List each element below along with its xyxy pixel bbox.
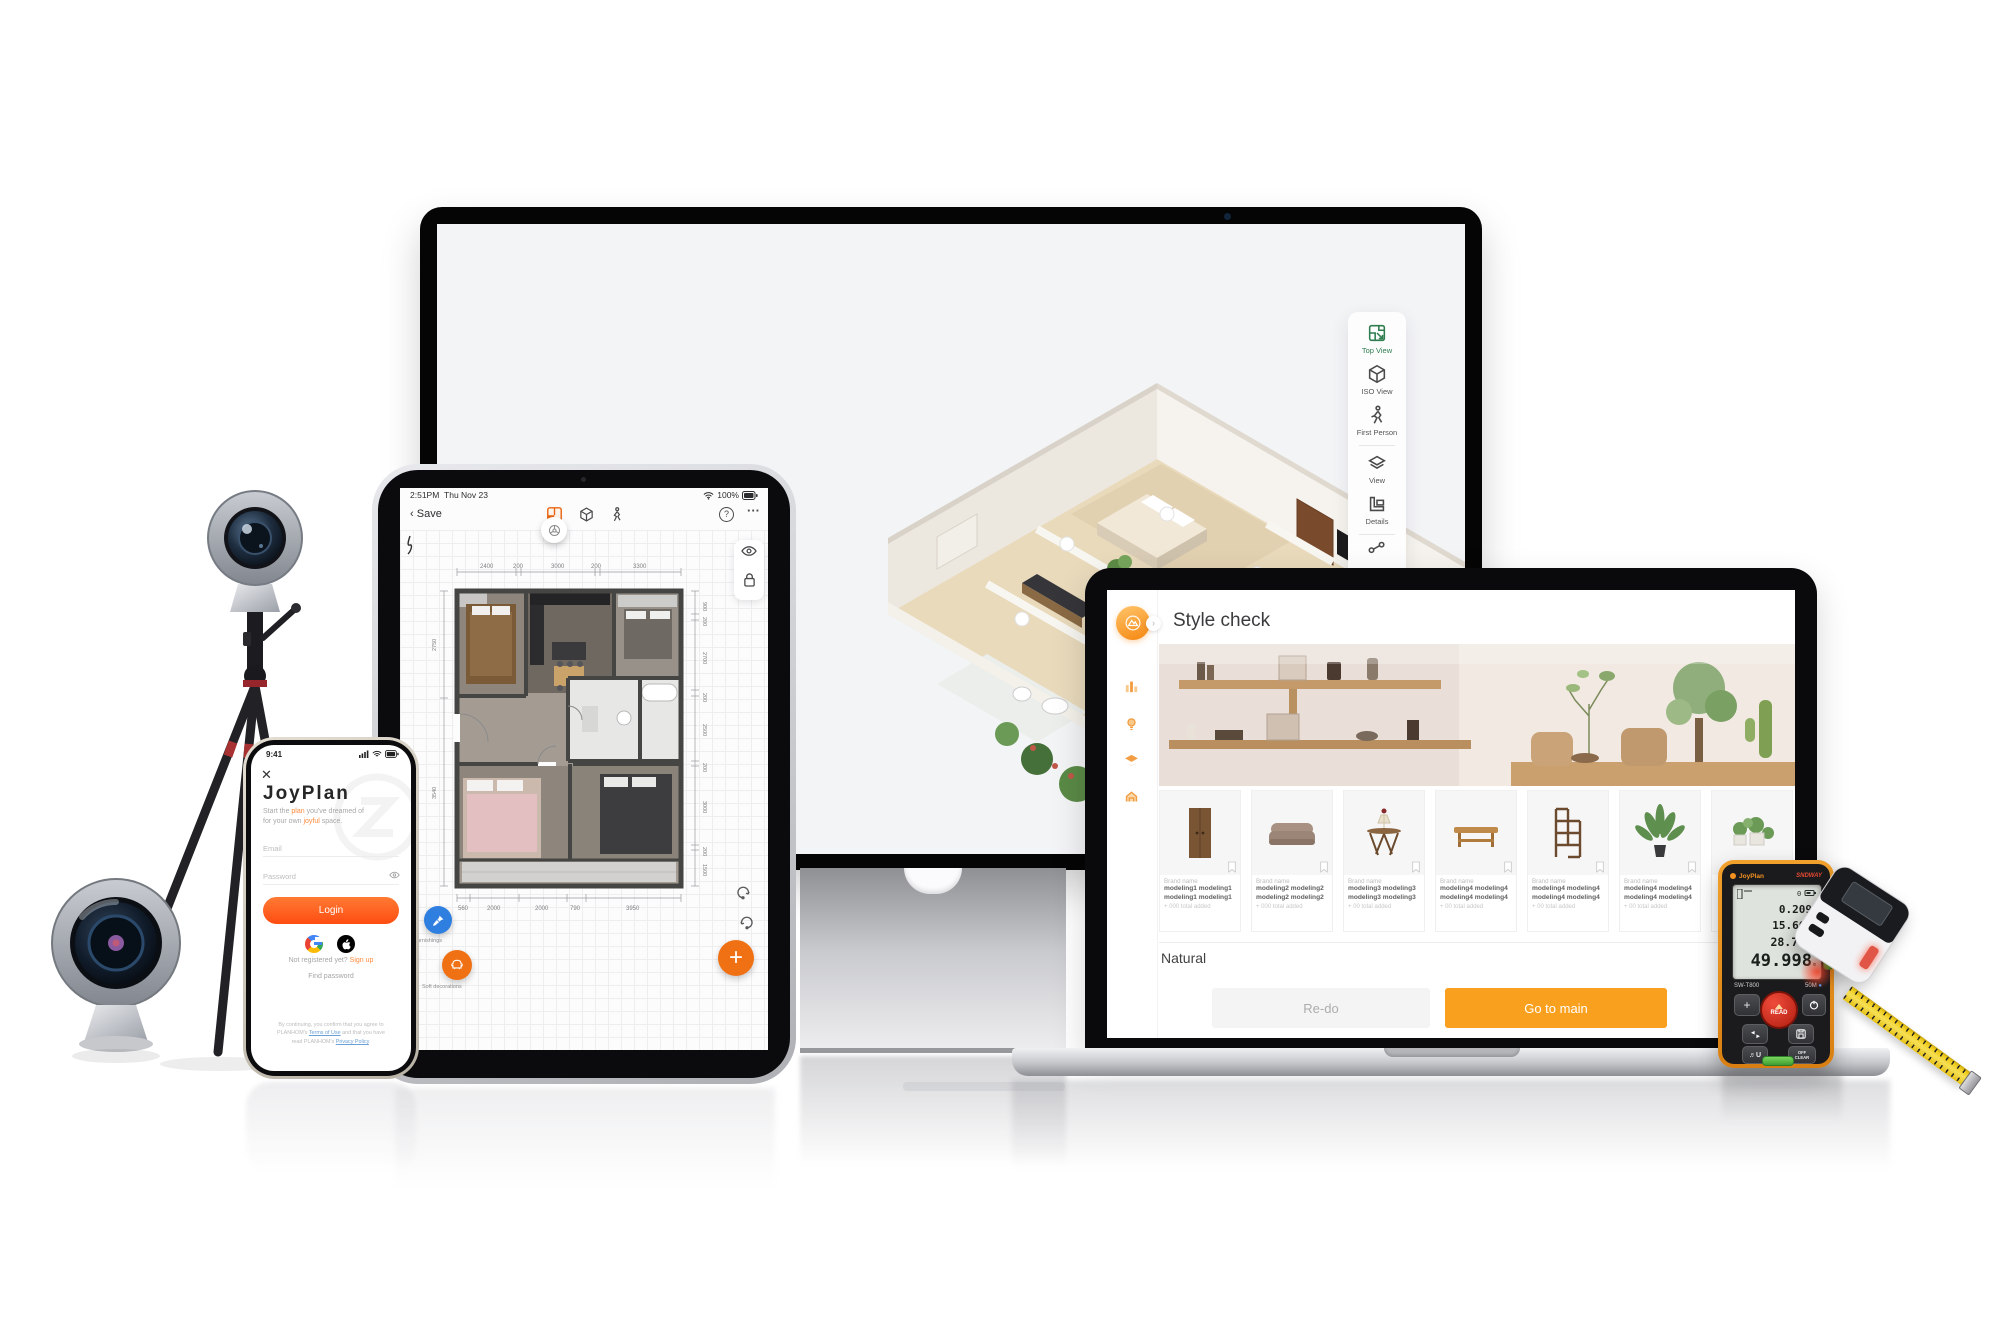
plus-button[interactable]: + <box>1734 994 1760 1016</box>
wifi-icon <box>372 750 382 758</box>
view-toolbar-label: Details <box>1348 517 1406 526</box>
svg-text:560: 560 <box>458 906 469 912</box>
privacy-link[interactable]: Privacy Policy <box>336 1039 369 1045</box>
tape-hook <box>1958 1070 1981 1095</box>
svg-text:3000: 3000 <box>551 564 565 570</box>
bookmark-icon[interactable] <box>1687 861 1697 873</box>
svg-text:2000: 2000 <box>487 906 501 912</box>
svg-text:1500: 1500 <box>701 864 707 876</box>
phone-reflection <box>246 1082 416 1172</box>
phone-screen: 9:41 ✕ JoyPlan Start the plan you've dre… <box>251 745 411 1071</box>
laptop-deck-scoop <box>1384 1048 1520 1057</box>
terms-link[interactable]: Terms of Use <box>309 1030 341 1036</box>
floorplan-2d-drawing: 2400 200 3000 200 3300 560 2000 2000 790… <box>418 546 764 976</box>
svg-text:2750: 2750 <box>432 639 438 651</box>
legal-text: By continuing, you confirm that you agre… <box>257 1021 405 1046</box>
brand-dot-icon <box>1730 873 1736 879</box>
svg-text:2400: 2400 <box>480 564 494 570</box>
first-person-icon <box>1366 404 1388 426</box>
svg-text:900: 900 <box>701 602 707 611</box>
bookmark-icon[interactable] <box>1227 861 1237 873</box>
tablet-toolbar: ‹ Save ? ··· <box>400 503 768 529</box>
sign-up-link[interactable]: Sign up <box>350 957 374 964</box>
furniture-card[interactable]: Brand namemodeling3 modeling3modeling3 m… <box>1343 790 1425 932</box>
rotate-view-button[interactable] <box>541 517 567 543</box>
walkthrough-mode-icon[interactable] <box>608 506 625 523</box>
battery-icon <box>385 750 399 758</box>
view-toolbar-label: Top View <box>1348 346 1406 355</box>
password-underline <box>263 884 399 885</box>
toolbar-divider <box>1359 445 1395 446</box>
soft-decorations-label: Soft decorations <box>422 984 462 990</box>
view-toolbar-details[interactable]: Details <box>1348 493 1406 526</box>
sidebar-layers-icon[interactable] <box>1123 752 1140 769</box>
furniture-card[interactable]: Brand namemodeling4 modeling4modeling4 m… <box>1619 790 1701 932</box>
view-toolbar-label: View <box>1348 476 1406 485</box>
undo-button[interactable] <box>734 882 752 900</box>
svg-text:3540: 3540 <box>432 787 438 799</box>
measurer-header: JoyPlan SNDWAY <box>1730 871 1822 881</box>
redo-button[interactable]: Re-do <box>1212 988 1430 1028</box>
view-toolbar-label: First Person <box>1348 428 1406 437</box>
furniture-card[interactable]: Brand namemodeling4 modeling4modeling4 m… <box>1435 790 1517 932</box>
layers-icon <box>1366 452 1388 474</box>
show-password-eye-icon[interactable] <box>389 871 400 879</box>
view-toolbar-share-partial[interactable] <box>1348 541 1406 563</box>
battery-icon <box>742 491 758 500</box>
email-field[interactable]: Email <box>263 844 282 853</box>
svg-text:2700: 2700 <box>701 652 707 664</box>
phone-status-time: 9:41 <box>266 750 282 759</box>
help-button[interactable]: ? <box>719 507 734 522</box>
share-icon <box>1366 541 1388 563</box>
view-toolbar-view-layers[interactable]: View <box>1348 452 1406 485</box>
signal-icon <box>359 750 369 758</box>
wifi-icon <box>703 491 714 500</box>
power-button[interactable] <box>1802 994 1826 1016</box>
svg-text:3950: 3950 <box>626 906 640 912</box>
tablet-status-right: 100% <box>703 490 758 500</box>
svg-text:200: 200 <box>591 564 602 570</box>
save-button[interactable] <box>1788 1024 1814 1044</box>
measurer-brand2: SNDWAY <box>1796 873 1822 879</box>
bookmark-icon[interactable] <box>1411 861 1421 873</box>
section-divider <box>1159 942 1795 943</box>
svg-text:3300: 3300 <box>633 564 647 570</box>
app-title: JoyPlan <box>263 783 350 805</box>
svg-text:200: 200 <box>701 847 707 856</box>
measurer-reflection <box>1722 1072 1842 1122</box>
furniture-card[interactable]: Brand namemodeling4 modeling4modeling4 m… <box>1527 790 1609 932</box>
password-field[interactable]: Password <box>263 872 296 881</box>
tape-button[interactable] <box>1815 911 1830 925</box>
add-item-fab[interactable]: + <box>718 940 754 976</box>
svg-text:2500: 2500 <box>701 724 707 736</box>
go-to-main-button[interactable]: Go to main <box>1445 988 1667 1028</box>
tablet-screen: 2:51PM Thu Nov 23 100% ‹ Save ? ··· <box>400 488 768 1050</box>
apple-signin-icon[interactable] <box>337 935 355 953</box>
bookmark-icon[interactable] <box>1595 861 1605 873</box>
view-toolbar-iso-view[interactable]: ISO View <box>1348 363 1406 396</box>
tablet-battery-percent: 100% <box>717 490 739 500</box>
monitor-stand <box>800 868 1066 1052</box>
tablet-status-bar: 2:51PM Thu Nov 23 100% <box>400 490 768 502</box>
not-registered-row: Not registered yet? Sign up <box>251 957 411 964</box>
tablet-status-time: 2:51PM Thu Nov 23 <box>410 490 488 500</box>
bottom-level-bubble <box>1762 1056 1794 1066</box>
tablet-plan-canvas[interactable]: 2400 200 3000 200 3300 560 2000 2000 790… <box>400 530 768 1050</box>
close-icon[interactable]: ✕ <box>261 767 272 783</box>
find-password-link[interactable]: Find password <box>251 973 411 980</box>
more-menu-button[interactable]: ··· <box>747 503 760 518</box>
iso-cube-icon <box>1366 363 1388 385</box>
phone-status-icons <box>359 750 399 758</box>
tape-button[interactable] <box>1807 923 1825 938</box>
laser-mode-icon <box>1737 889 1753 899</box>
toolbar-divider <box>1359 534 1395 535</box>
app-logo[interactable] <box>1116 606 1150 640</box>
login-button[interactable]: Login <box>263 897 399 924</box>
google-signin-icon[interactable] <box>305 935 323 953</box>
soft-decorations-fab[interactable] <box>442 950 472 980</box>
tape-laser-window <box>1858 945 1879 971</box>
svg-text:200: 200 <box>701 617 707 626</box>
tablet-camera-dot <box>581 477 586 482</box>
view-toolbar-label: ISO View <box>1348 387 1406 396</box>
section-title: Natural <box>1161 950 1206 966</box>
laptop-reflection <box>1012 1080 1890 1170</box>
svg-text:0: 0 <box>1797 890 1801 897</box>
email-underline <box>263 856 399 857</box>
furniture-card-row: Brand namemodeling1 modeling1modeling1 m… <box>1159 790 1795 932</box>
measurer-brand: JoyPlan <box>1739 873 1764 880</box>
sidebar-home-icon[interactable] <box>1123 788 1140 805</box>
furniture-card[interactable]: Brand namemodeling2 modeling2modeling2 m… <box>1251 790 1333 932</box>
top-view-icon <box>1366 322 1388 344</box>
product-showcase: Top View ISO View First Person View <box>0 0 2000 1333</box>
measurer-model: SW-T800 <box>1734 983 1759 989</box>
svg-text:200: 200 <box>513 564 524 570</box>
laptop-sidebar: › <box>1107 590 1158 1038</box>
svg-text:3000: 3000 <box>701 801 707 813</box>
svg-text:790: 790 <box>570 906 581 912</box>
app-subtitle-line1: Start the plan you've dreamed of <box>263 808 364 815</box>
lcd-battery-icon: 0 <box>1797 889 1817 897</box>
save-back-button[interactable]: ‹ Save <box>410 508 442 520</box>
sidebar-projects-icon[interactable] <box>1123 678 1140 695</box>
svg-text:200: 200 <box>701 763 707 772</box>
sidebar-expand-chevron[interactable]: › <box>1146 616 1161 631</box>
view-toolbar-top-view[interactable]: Top View <box>1348 322 1406 355</box>
monitor-stand-base <box>903 1082 1065 1091</box>
cube-3d-mode-icon[interactable] <box>578 506 595 523</box>
units-flip-button[interactable] <box>1742 1024 1768 1044</box>
sidebar-ideas-icon[interactable] <box>1123 716 1140 733</box>
details-section-icon <box>1366 493 1388 515</box>
bookmark-icon[interactable] <box>1319 861 1329 873</box>
monitor-camera-dot <box>1224 213 1231 220</box>
view-toolbar-first-person[interactable]: First Person <box>1348 404 1406 437</box>
svg-text:200: 200 <box>701 693 707 702</box>
tablet-reflection <box>395 1088 775 1188</box>
tape-measure-cap <box>1818 863 1913 945</box>
tape-measure-lcd <box>1840 881 1893 927</box>
app-subtitle-line2: for your own joyful space. <box>263 818 342 825</box>
bookmark-icon[interactable] <box>1503 861 1513 873</box>
style-banner-photo <box>1159 644 1795 786</box>
svg-text:2000: 2000 <box>535 906 549 912</box>
page-title: Style check <box>1173 610 1270 632</box>
furniture-card[interactable]: Brand namemodeling1 modeling1modeling1 m… <box>1159 790 1241 932</box>
redo-button[interactable] <box>738 912 756 930</box>
hard-furnishings-fab[interactable] <box>424 906 452 934</box>
laptop-screen: › Style check <box>1107 590 1795 1038</box>
